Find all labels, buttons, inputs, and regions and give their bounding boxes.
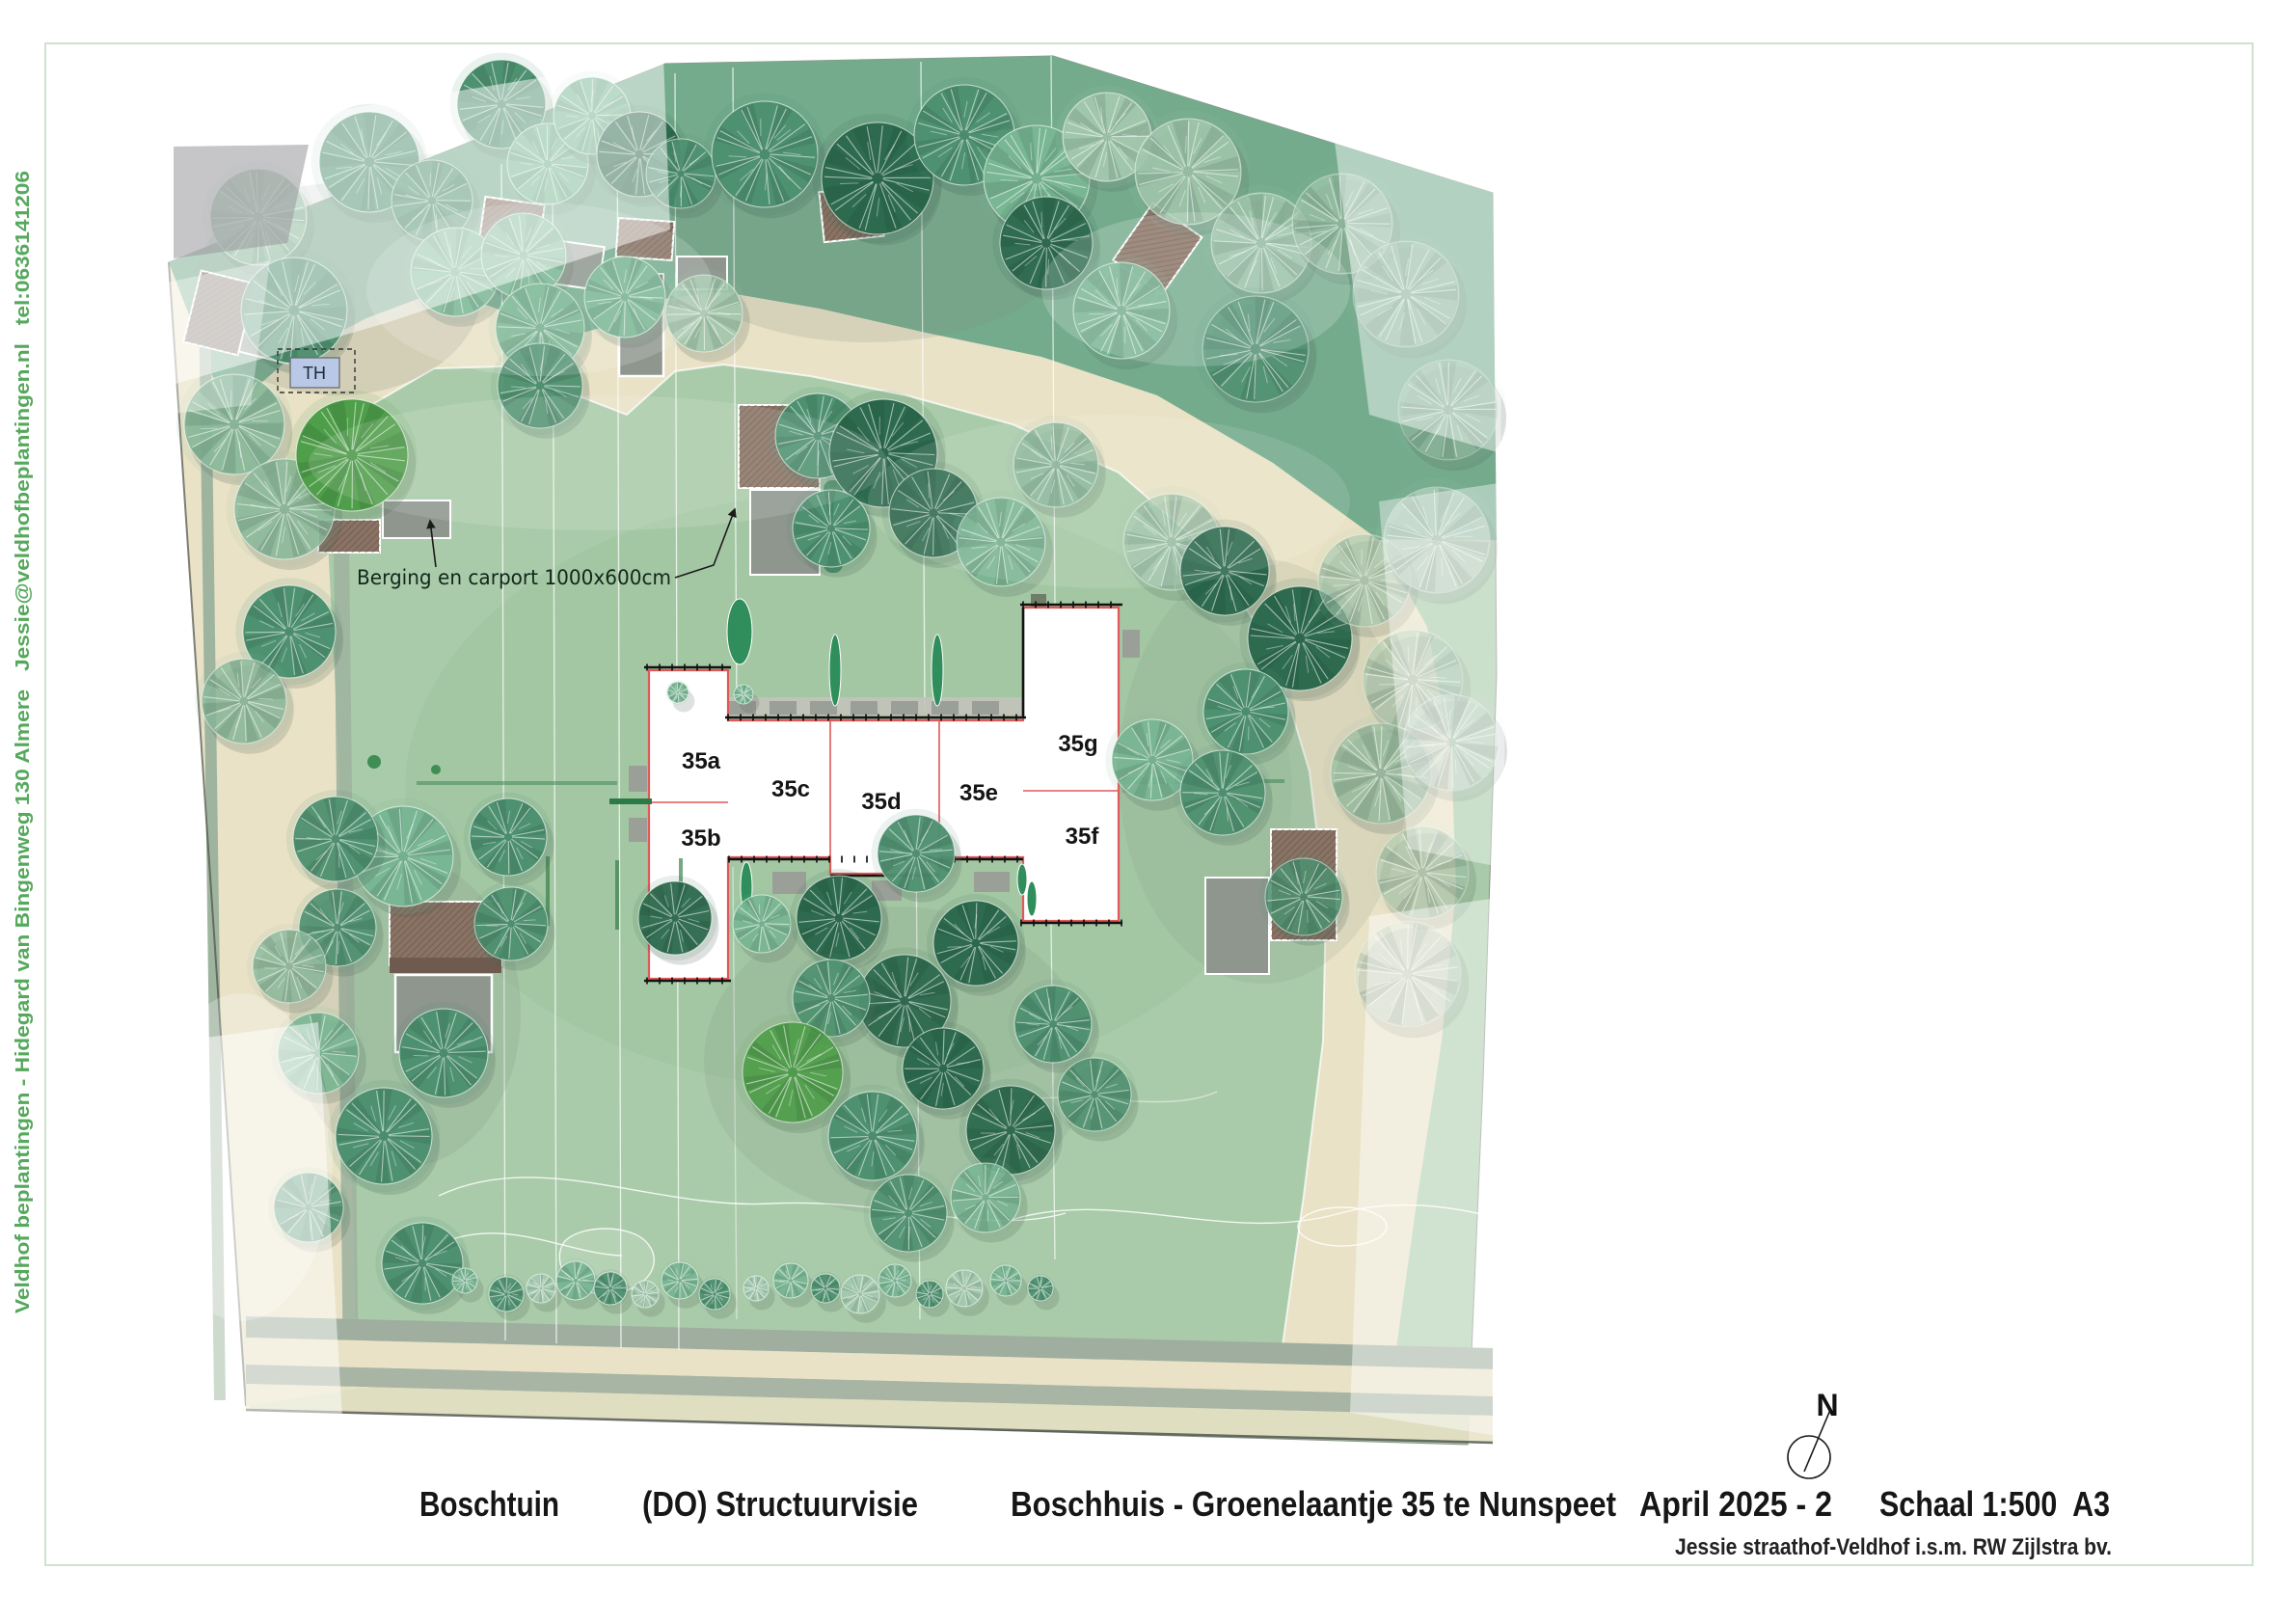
site-plan-canvas: TH Berging en carport 1000x600cm 35a 35b… <box>0 0 2296 1623</box>
walkway-slabs <box>729 701 999 715</box>
scale-title: Schaal 1:500 A3 <box>1879 1484 2110 1524</box>
unit-label-35a: 35a <box>682 748 721 774</box>
berging-annotation: Berging en carport 1000x600cm <box>357 566 671 589</box>
unit-label-35b: 35b <box>681 825 720 852</box>
project-title: Boschtuin <box>419 1484 559 1524</box>
unit-label-35e: 35e <box>959 780 998 806</box>
unit-label-35d: 35d <box>861 789 901 815</box>
unit-label-35f: 35f <box>1066 824 1100 850</box>
date-title: April 2025 - 2 <box>1639 1484 1832 1524</box>
address-title: Boschhuis - Groenelaantje 35 te Nunspeet <box>1011 1484 1616 1524</box>
compass-circle <box>1788 1436 1830 1478</box>
drawing-sheet: TH Berging en carport 1000x600cm 35a 35b… <box>0 0 2296 1623</box>
title-block: Boschtuin (DO) Structuurvisie Boschhuis … <box>419 1484 2112 1560</box>
unit-label-35c: 35c <box>771 776 810 802</box>
unit-label-35g: 35g <box>1058 731 1097 757</box>
designer-credit: Jessie straathof-Veldhof i.s.m. RW Zijls… <box>1675 1534 2112 1560</box>
north-label: N <box>1816 1388 1838 1422</box>
north-compass: N <box>1788 1388 1839 1478</box>
side-credit: Veldhof beplantingen - Hidegard van Bing… <box>13 171 34 1313</box>
tiny-house-label: TH <box>303 364 326 383</box>
phase-title: (DO) Structuurvisie <box>642 1484 918 1524</box>
